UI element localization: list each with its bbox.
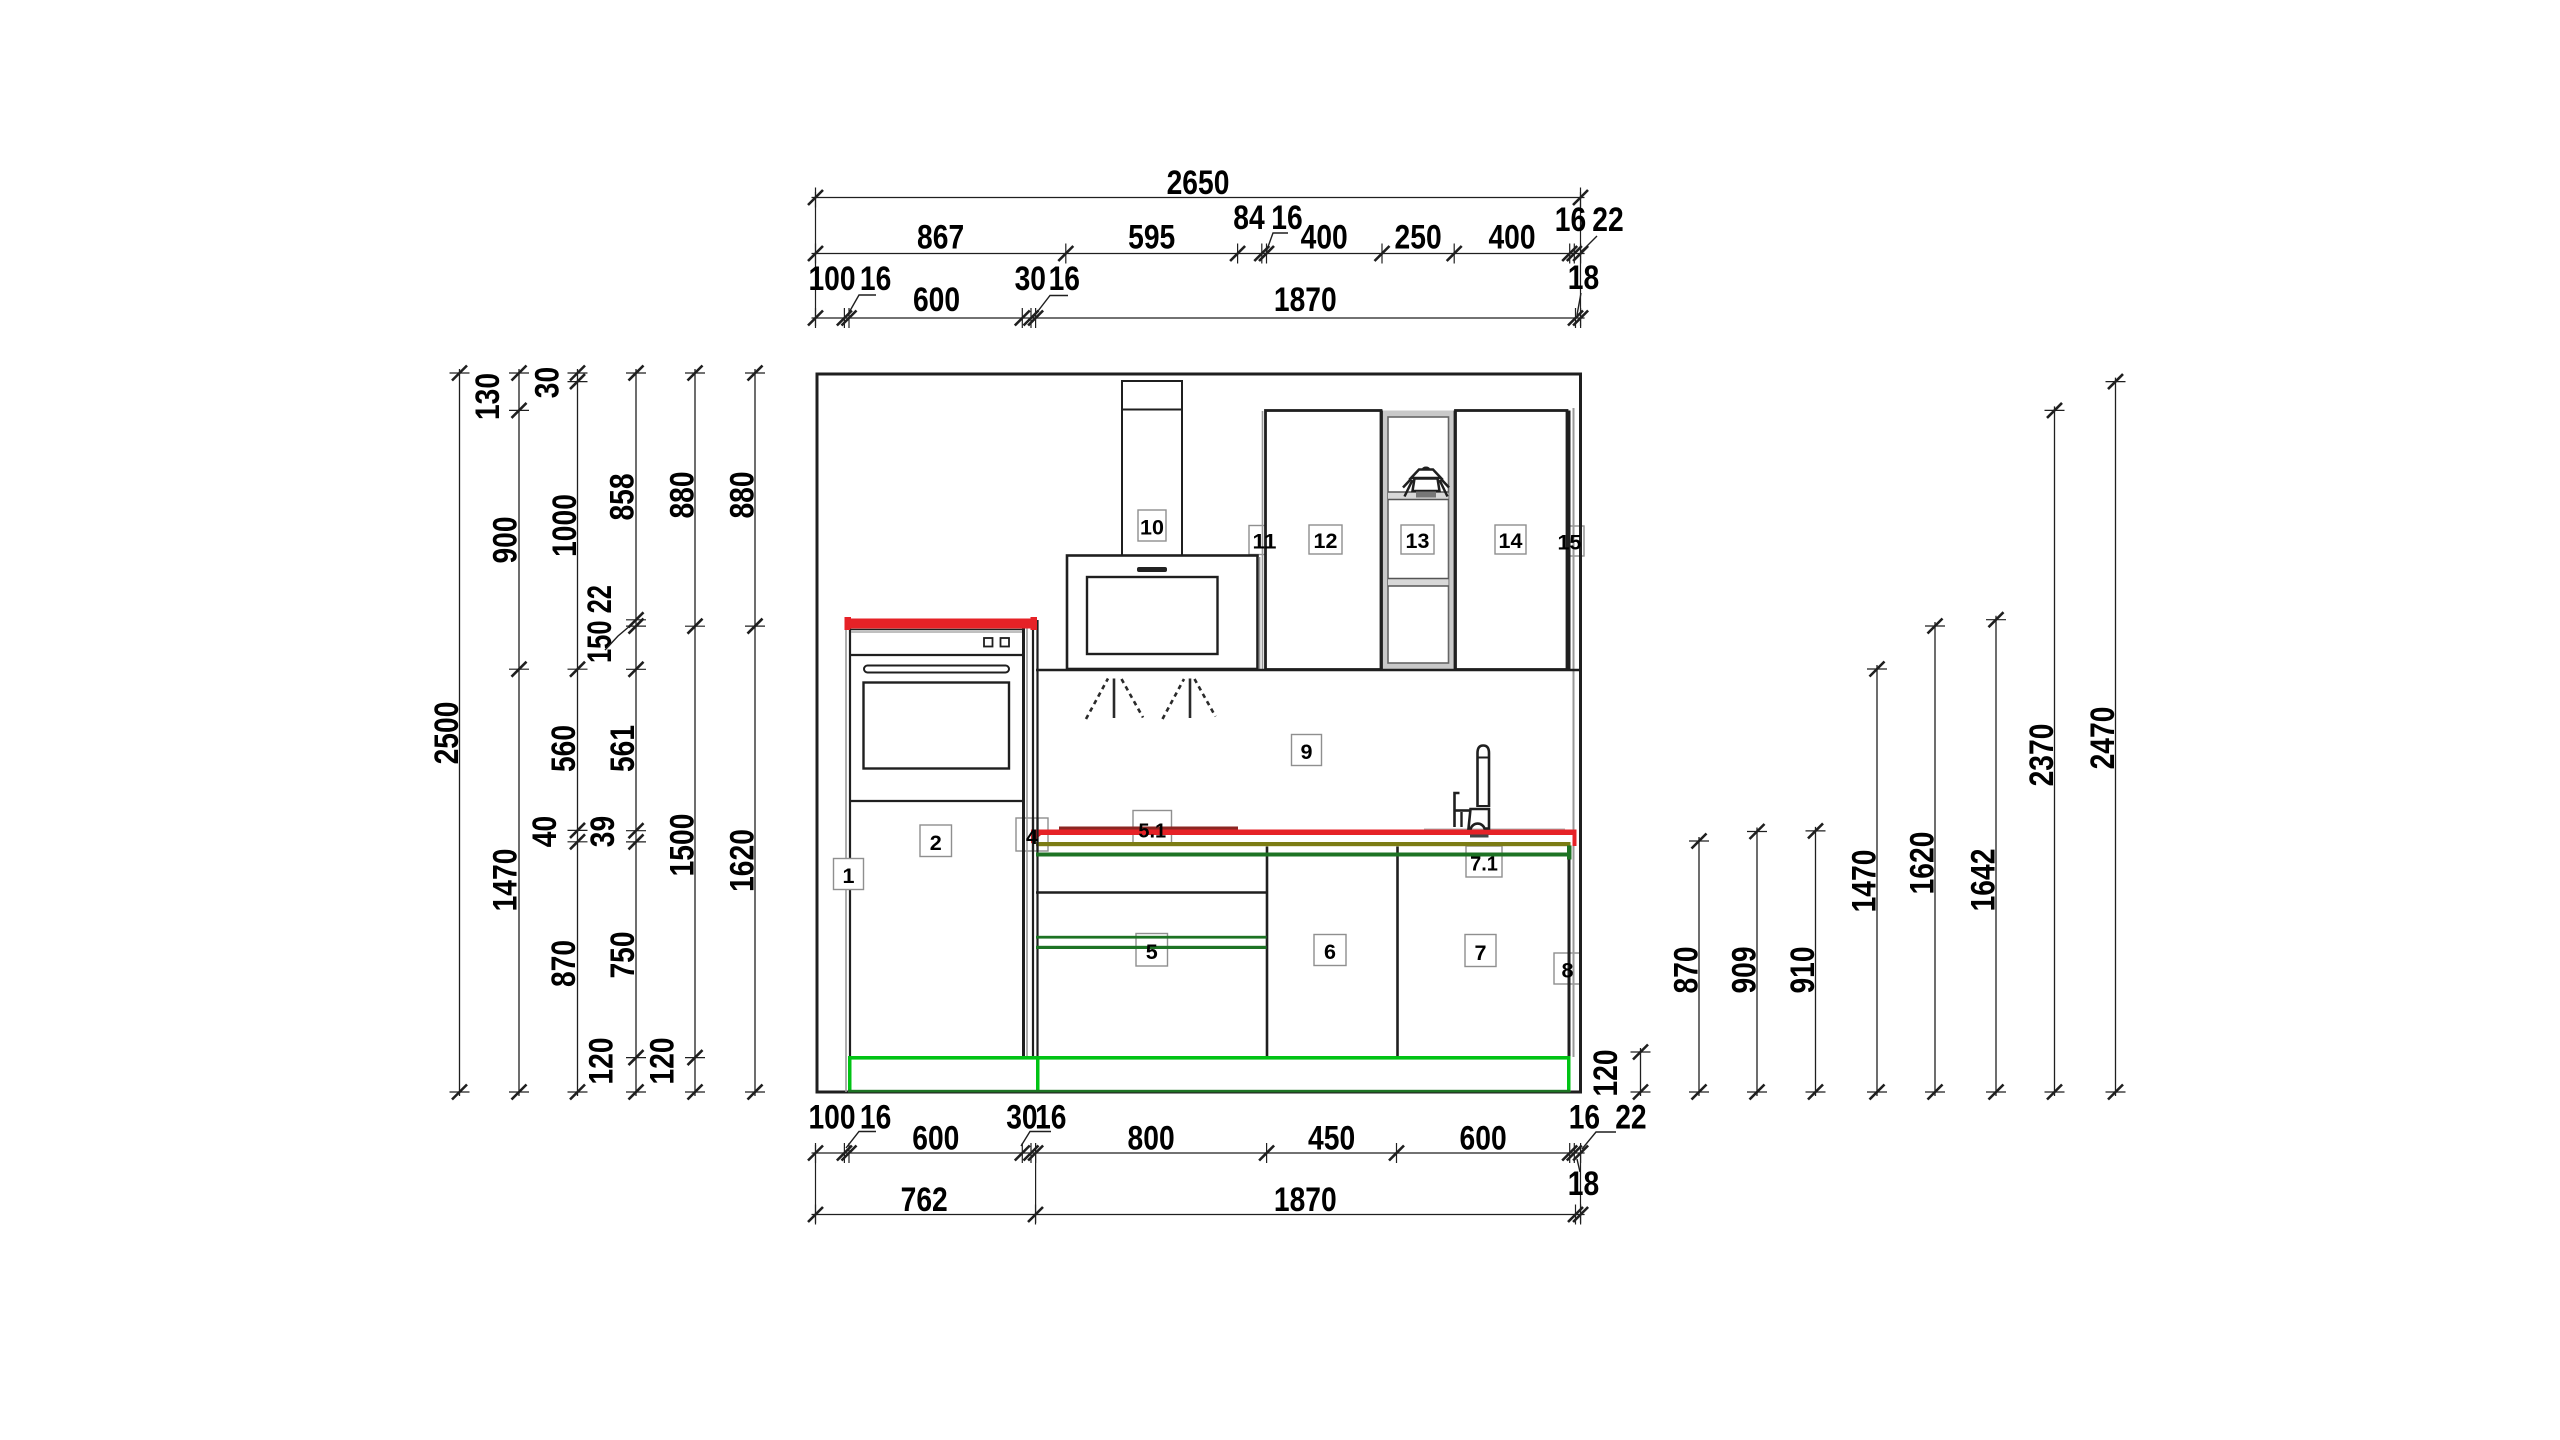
svg-text:1620: 1620 [724,829,762,892]
svg-text:880: 880 [664,471,702,518]
svg-text:7: 7 [1475,941,1487,965]
svg-text:450: 450 [1308,1120,1355,1158]
svg-text:800: 800 [1128,1120,1175,1158]
svg-text:600: 600 [913,281,960,319]
svg-text:2470: 2470 [2084,707,2122,770]
svg-text:40: 40 [526,816,564,847]
svg-text:16: 16 [860,260,891,298]
svg-text:16: 16 [1555,201,1586,239]
svg-text:30: 30 [529,367,567,398]
svg-text:561: 561 [604,725,642,772]
svg-text:5: 5 [1146,940,1158,964]
svg-text:120: 120 [583,1037,621,1084]
svg-text:2370: 2370 [2023,724,2061,787]
svg-text:909: 909 [1726,946,1764,993]
svg-text:1: 1 [843,864,855,888]
svg-text:400: 400 [1488,219,1535,257]
svg-text:2: 2 [930,831,942,855]
svg-text:100: 100 [808,260,855,298]
svg-text:22: 22 [1615,1099,1646,1137]
svg-text:18: 18 [1568,1165,1599,1203]
svg-text:1870: 1870 [1274,1181,1337,1219]
svg-text:560: 560 [545,725,583,772]
svg-text:8: 8 [1562,958,1574,982]
svg-text:762: 762 [901,1181,948,1219]
svg-text:30: 30 [1015,260,1046,298]
svg-text:867: 867 [917,219,964,257]
svg-text:900: 900 [487,516,525,563]
svg-text:100: 100 [808,1099,855,1137]
svg-text:1620: 1620 [1904,832,1942,895]
svg-text:2500: 2500 [428,702,466,765]
svg-text:39: 39 [584,816,622,847]
svg-text:1500: 1500 [664,814,702,877]
svg-text:16: 16 [1049,260,1080,298]
svg-text:1870: 1870 [1274,281,1337,319]
svg-text:750: 750 [604,931,642,978]
svg-text:7.1: 7.1 [1470,853,1498,875]
svg-text:1642: 1642 [1965,849,2003,912]
svg-text:84: 84 [1233,199,1264,237]
svg-text:12: 12 [1314,529,1338,553]
svg-text:5.1: 5.1 [1138,820,1166,842]
svg-text:858: 858 [604,473,642,520]
svg-text:10: 10 [1140,515,1164,539]
svg-text:150 22: 150 22 [581,585,619,663]
svg-text:130: 130 [469,373,507,420]
svg-text:880: 880 [724,471,762,518]
svg-text:910: 910 [1784,946,1822,993]
svg-text:600: 600 [1460,1120,1507,1158]
svg-text:22: 22 [1592,201,1623,239]
svg-text:595: 595 [1128,219,1175,257]
svg-text:120: 120 [644,1037,682,1084]
svg-text:11: 11 [1253,529,1277,553]
svg-text:4: 4 [1026,825,1038,849]
svg-text:1000: 1000 [546,494,584,557]
svg-text:16: 16 [1569,1099,1600,1137]
svg-text:250: 250 [1395,219,1442,257]
svg-text:120: 120 [1587,1049,1625,1096]
svg-text:14: 14 [1499,529,1523,553]
svg-text:6: 6 [1324,940,1336,964]
svg-text:600: 600 [912,1120,959,1158]
svg-text:870: 870 [545,940,583,987]
svg-text:15: 15 [1558,531,1582,555]
svg-text:1470: 1470 [487,849,525,912]
svg-text:9: 9 [1301,740,1313,764]
svg-text:400: 400 [1301,219,1348,257]
svg-text:1470: 1470 [1846,850,1884,913]
svg-text:18: 18 [1568,259,1599,297]
svg-text:870: 870 [1668,946,1706,993]
svg-text:2650: 2650 [1167,164,1230,202]
svg-text:16: 16 [1271,199,1302,237]
svg-text:13: 13 [1406,529,1430,553]
